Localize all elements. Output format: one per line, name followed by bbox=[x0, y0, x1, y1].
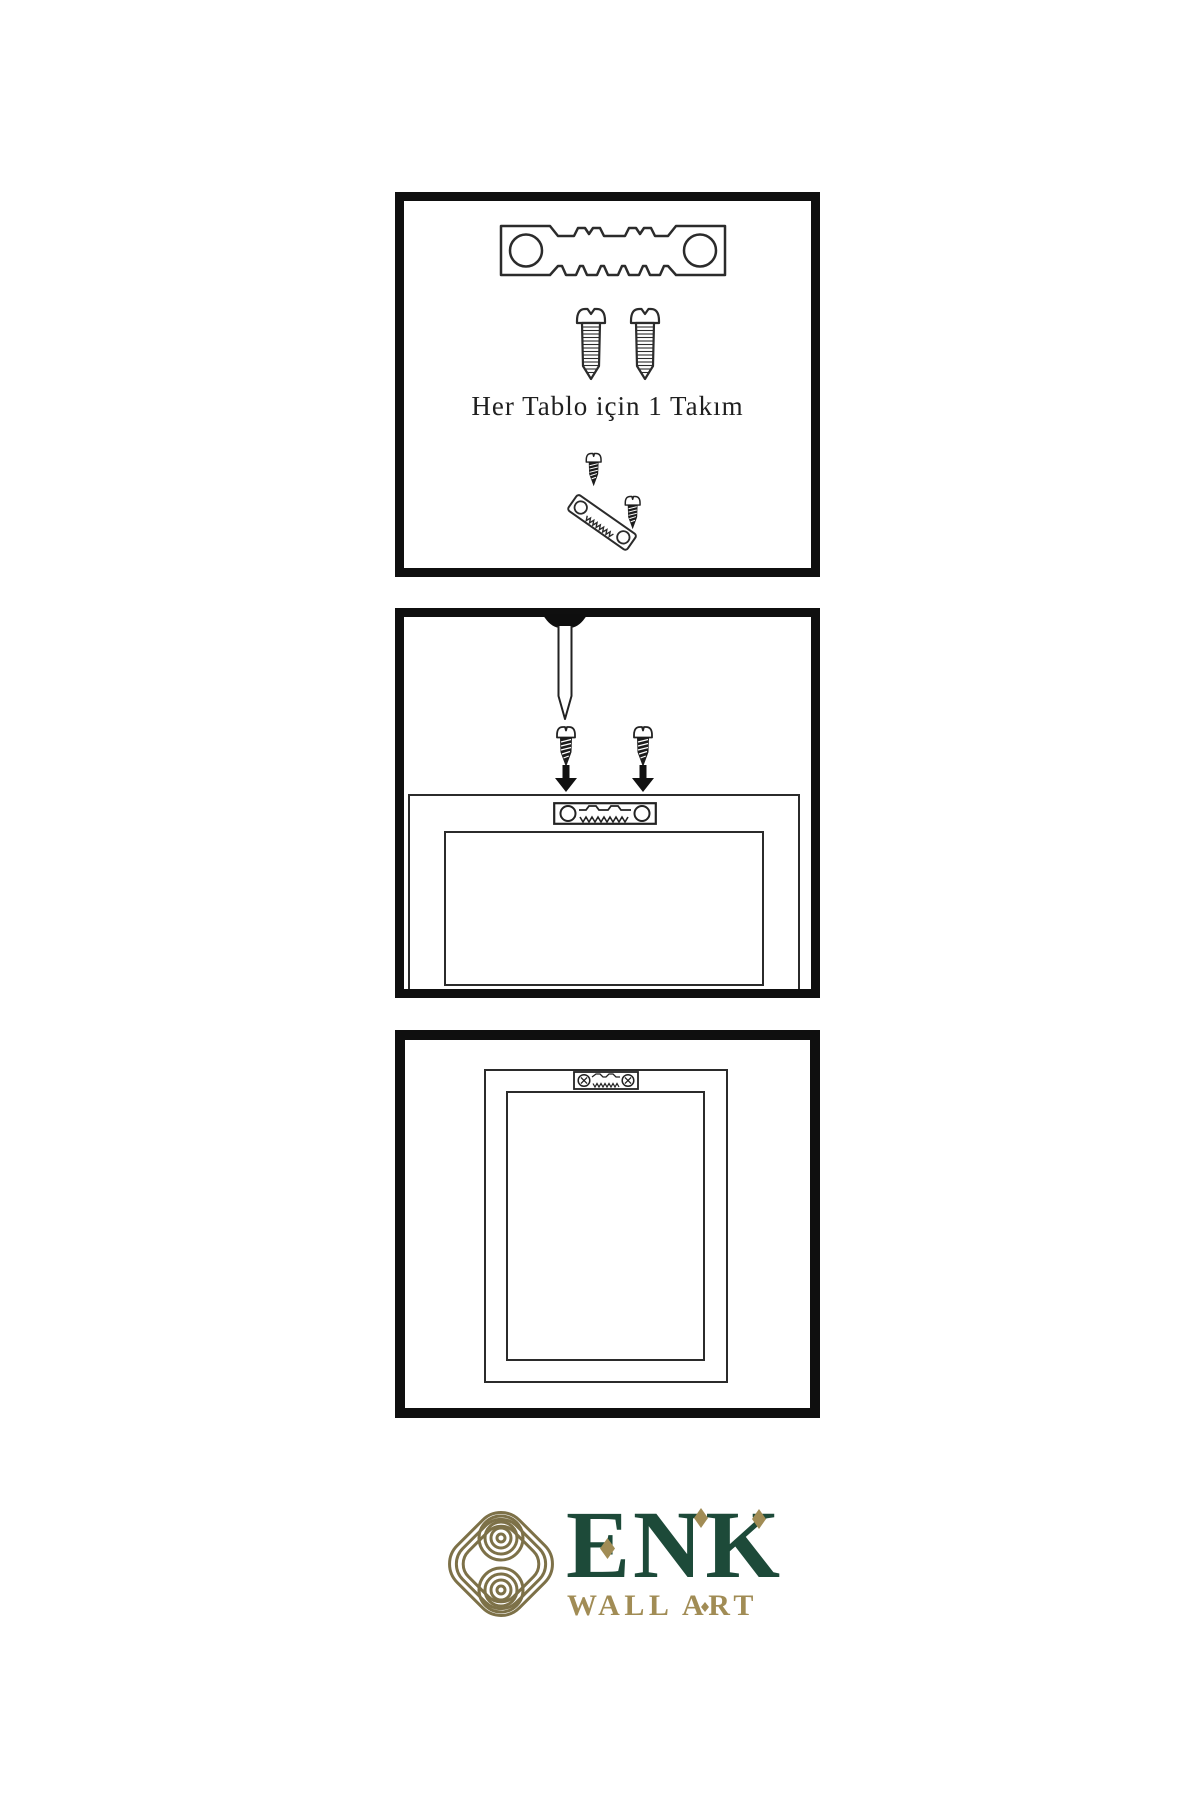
brand-knot-logo-icon bbox=[440, 1497, 562, 1631]
frame-back-inner bbox=[444, 831, 764, 986]
panel-hardware-kit: Her Tablo için 1 Takım bbox=[395, 192, 820, 577]
brand-subtitle: WALL ART bbox=[567, 1591, 758, 1621]
instruction-sheet: Her Tablo için 1 Takım ENK WALL ART bbox=[0, 0, 1200, 1800]
screw-icon bbox=[628, 304, 662, 382]
arrow-down-icon bbox=[631, 765, 655, 793]
mounted-hanger-icon bbox=[573, 1071, 639, 1090]
kit-caption: Her Tablo için 1 Takım bbox=[404, 391, 811, 422]
arrow-down-icon bbox=[554, 765, 578, 793]
sawtooth-hanger-icon bbox=[498, 223, 728, 279]
screw-icon bbox=[574, 304, 608, 382]
panel-mounted-frame bbox=[395, 1030, 820, 1418]
dark-screw-icon bbox=[630, 724, 656, 768]
wall-nail-icon bbox=[541, 614, 589, 722]
picture-frame-inner bbox=[506, 1091, 705, 1361]
panel-attach-hanger bbox=[395, 608, 820, 998]
hanger-assembly-icon bbox=[566, 450, 661, 555]
brand-name: ENK bbox=[566, 1497, 783, 1593]
sawtooth-hanger-icon bbox=[553, 802, 657, 825]
dark-screw-icon bbox=[553, 724, 579, 768]
